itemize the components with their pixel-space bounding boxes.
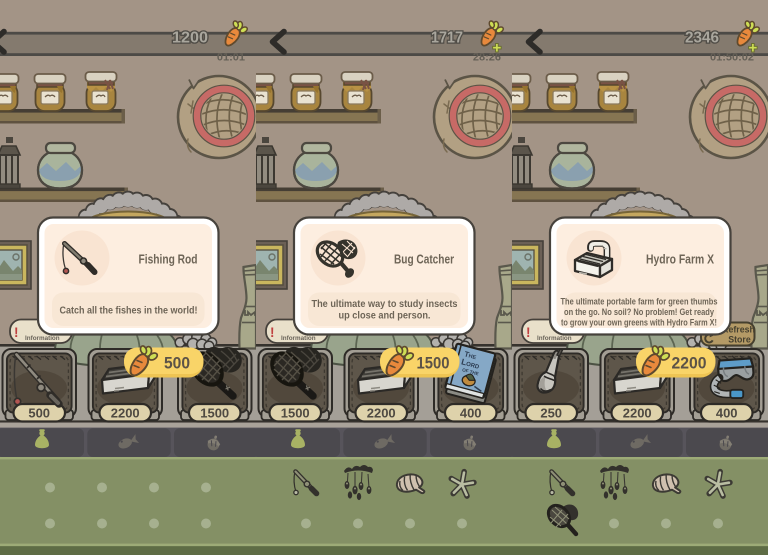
svg-text:1500: 1500 [281,406,310,421]
svg-text:2200: 2200 [367,406,396,421]
svg-text:2200: 2200 [672,355,707,373]
svg-text:Fishing Rod: Fishing Rod [139,252,198,267]
svg-text:400: 400 [716,406,738,421]
svg-text:1717: 1717 [431,30,463,47]
svg-text:The ultimate way to study inse: The ultimate way to study insects [312,299,458,310]
svg-text:250: 250 [540,406,562,421]
svg-text:01:01: 01:01 [217,52,245,64]
svg-text:!: ! [270,325,275,340]
svg-text:1500: 1500 [200,406,229,421]
svg-text:Bug Catcher: Bug Catcher [394,252,454,267]
svg-text:500: 500 [164,355,190,373]
svg-text:1500: 1500 [417,355,450,373]
svg-text:to grow your own greens with H: to grow your own greens with Hydro Farm … [561,318,717,328]
svg-text:Information: Information [25,335,60,342]
svg-text:Catch all the fishes in the wo: Catch all the fishes in the world! [60,306,198,317]
svg-text:Hydro Farm X: Hydro Farm X [646,252,714,267]
svg-text:1200: 1200 [172,30,208,47]
svg-text:Information: Information [281,335,316,342]
svg-text:2200: 2200 [111,406,140,421]
svg-text:2200: 2200 [623,406,652,421]
svg-text:on the go. No soil? No problem: on the go. No soil? No problem! Get read… [564,307,714,317]
svg-text:01:50:02: 01:50:02 [710,52,754,64]
svg-text:Store: Store [728,335,751,345]
svg-text:28:26: 28:26 [473,52,501,64]
svg-text:2346: 2346 [685,30,719,47]
svg-text:Information: Information [537,335,572,342]
svg-text:500: 500 [28,406,50,421]
svg-text:!: ! [14,325,19,340]
svg-text:!: ! [526,325,531,340]
svg-text:The ultimate portable farm for: The ultimate portable farm for green thu… [561,297,718,307]
svg-text:400: 400 [460,406,482,421]
svg-text:up close and person.: up close and person. [339,311,431,322]
